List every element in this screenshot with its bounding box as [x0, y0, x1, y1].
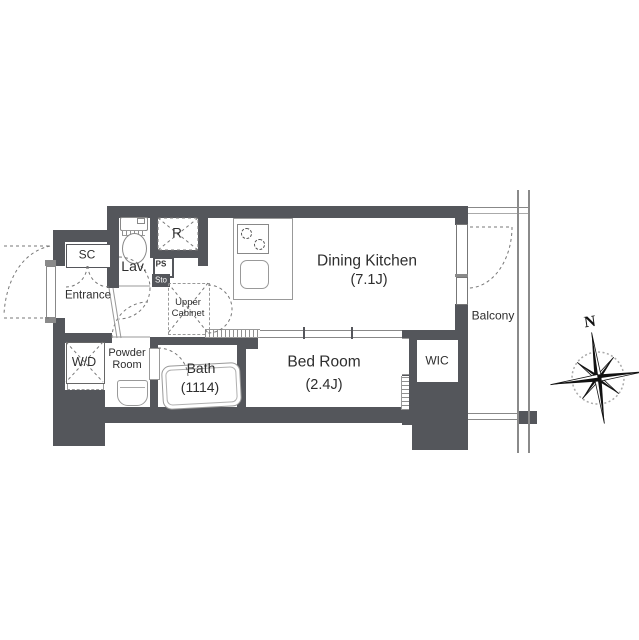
partition-tick [303, 327, 305, 339]
toilet-flush-handle [137, 218, 145, 224]
window-mullion [455, 274, 468, 277]
balcony-door-swing-arc [468, 227, 512, 288]
balcony-window-upper [456, 224, 468, 277]
wall-bath-top [150, 337, 246, 345]
label-powder-room: Powder Room [99, 347, 155, 372]
powder-room-door-swing-arc [112, 302, 148, 338]
partition-tick [351, 327, 353, 339]
label-entrance: Entrance [65, 290, 111, 303]
entry-door-hinge-top [45, 260, 56, 266]
label-balcony: Balcony [472, 309, 515, 322]
washbasin [117, 380, 148, 406]
label-upper-cabinet: Upper Cabinet [167, 298, 209, 319]
wall-bottom-left-block [53, 390, 105, 446]
wall-wic-bottom-extension [412, 425, 468, 450]
label-refrigerator: R [172, 225, 182, 240]
label-storage: Sto [155, 277, 167, 286]
kitchen-sink [240, 260, 269, 289]
wall-bottom [103, 407, 412, 423]
dk-bedroom-partition [246, 330, 402, 338]
wall-top [107, 206, 468, 218]
wall-bedroom-top-left-nub [237, 337, 258, 349]
label-bed-room-size: (2.4J) [305, 377, 342, 393]
wic-door-opening [402, 338, 409, 375]
stove-burner-icon [241, 228, 252, 239]
washer-dryer-dashed-extension [67, 384, 104, 390]
building-edge-line-inner [517, 190, 519, 453]
label-dining-kitchen-size: (7.1J) [350, 272, 387, 288]
wall-right-top-corner [455, 206, 468, 225]
entry-door-swing-arc [4, 246, 50, 318]
entry-door-hinge-bottom [45, 317, 56, 323]
wic-side-hatch [401, 376, 409, 410]
label-shoe-closet: SC [79, 248, 96, 261]
entry-door-leaf [46, 266, 56, 320]
balcony-bottom-edge [468, 413, 518, 420]
label-bed-room: Bed Room [287, 353, 360, 370]
wall-right-mid [455, 304, 468, 340]
label-washer-dryer: W/D [72, 355, 96, 369]
shoe-closet-door-arcs [66, 266, 109, 287]
label-bath: Bath [187, 361, 216, 377]
label-lavatory: Lav. [121, 259, 146, 275]
label-wic: WIC [425, 354, 448, 367]
compass-north-label: N [583, 313, 597, 332]
label-pipe-space: PS [156, 261, 167, 270]
washbasin-line [120, 387, 145, 388]
label-dining-kitchen: Dining Kitchen [317, 252, 417, 269]
compass-rose-icon: N [548, 308, 639, 440]
building-edge-line-outer [528, 190, 530, 453]
upper-cabinet-door-arc [208, 285, 232, 333]
balcony-window-lower [456, 277, 468, 305]
wall-dk-left [198, 206, 208, 266]
label-bath-size: (1114) [181, 380, 219, 396]
counter-edge-hatch [205, 329, 260, 338]
balcony-top-edge [468, 207, 529, 214]
stove-burner-icon [254, 239, 265, 250]
line-work-layer [0, 0, 639, 640]
floor-plan: SC Entrance Lav. R PS Sto Upper Cabinet … [0, 0, 639, 640]
wall-lav-r-divider [150, 206, 158, 258]
